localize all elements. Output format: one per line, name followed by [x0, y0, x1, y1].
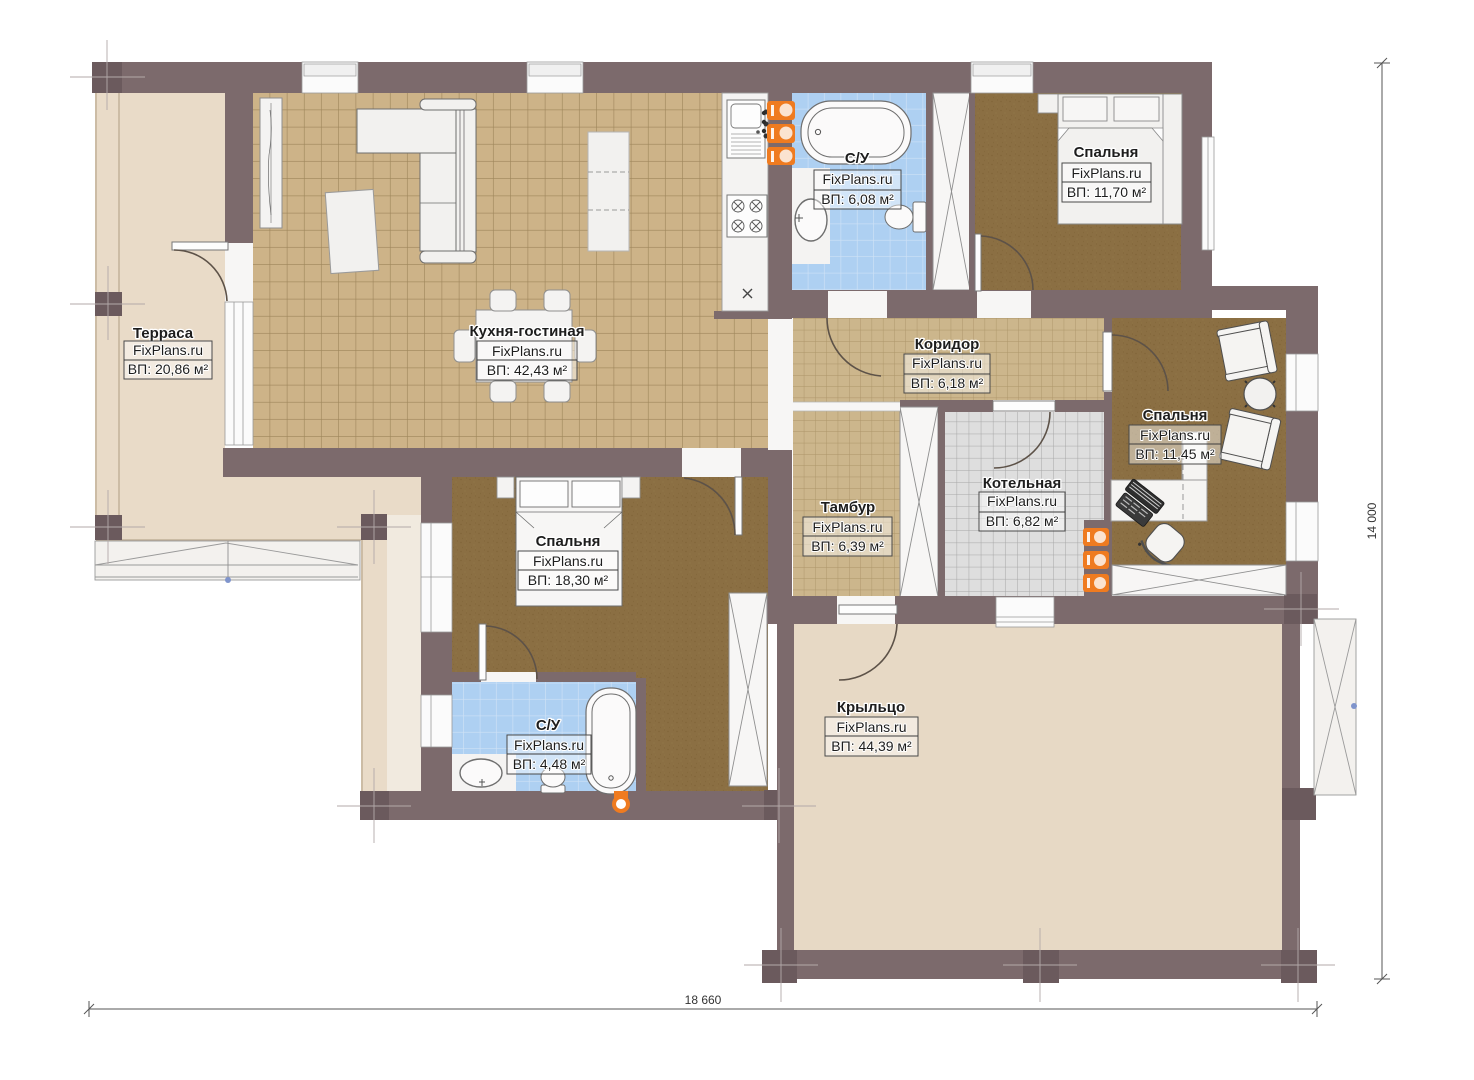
svg-text:Спальня: Спальня [536, 533, 601, 550]
svg-text:ВП: 4,48 м²: ВП: 4,48 м² [513, 756, 586, 772]
svg-text:ВП: 11,70 м²: ВП: 11,70 м² [1067, 184, 1147, 200]
svg-text:ВП: 11,45 м²: ВП: 11,45 м² [1135, 446, 1215, 462]
svg-text:FixPlans.ru: FixPlans.ru [836, 719, 906, 735]
svg-text:ВП: 18,30 м²: ВП: 18,30 м² [528, 572, 609, 588]
svg-text:ВП: 44,39 м²: ВП: 44,39 м² [831, 738, 912, 754]
svg-text:FixPlans.ru: FixPlans.ru [987, 493, 1057, 509]
svg-text:ВП: 42,43 м²: ВП: 42,43 м² [487, 362, 568, 378]
svg-text:С/У: С/У [536, 717, 561, 734]
svg-text:ВП: 6,18 м²: ВП: 6,18 м² [911, 375, 984, 391]
svg-text:FixPlans.ru: FixPlans.ru [133, 342, 203, 358]
svg-text:ВП: 6,39 м²: ВП: 6,39 м² [811, 538, 884, 554]
svg-text:ВП: 20,86 м²: ВП: 20,86 м² [128, 361, 209, 377]
svg-text:Коридор: Коридор [915, 336, 980, 353]
svg-text:Крыльцо: Крыльцо [837, 699, 905, 716]
svg-text:ВП: 6,08 м²: ВП: 6,08 м² [821, 191, 894, 207]
svg-text:FixPlans.ru: FixPlans.ru [514, 737, 584, 753]
svg-text:FixPlans.ru: FixPlans.ru [1071, 165, 1141, 181]
svg-text:Котельная: Котельная [983, 475, 1062, 492]
svg-text:FixPlans.ru: FixPlans.ru [492, 343, 562, 359]
svg-text:С/У: С/У [845, 150, 870, 167]
svg-text:FixPlans.ru: FixPlans.ru [822, 171, 892, 187]
svg-text:FixPlans.ru: FixPlans.ru [533, 553, 603, 569]
svg-text:Спальня: Спальня [1143, 407, 1208, 424]
svg-text:Кухня-гостиная: Кухня-гостиная [470, 323, 585, 340]
svg-text:Спальня: Спальня [1074, 144, 1139, 161]
svg-text:Тамбур: Тамбур [821, 499, 875, 516]
svg-text:FixPlans.ru: FixPlans.ru [1140, 427, 1210, 443]
svg-text:ВП: 6,82 м²: ВП: 6,82 м² [986, 513, 1059, 529]
svg-text:FixPlans.ru: FixPlans.ru [912, 355, 982, 371]
svg-text:Терраса: Терраса [133, 325, 194, 342]
svg-text:14 000: 14 000 [1365, 502, 1379, 539]
svg-text:FixPlans.ru: FixPlans.ru [812, 519, 882, 535]
svg-text:18 660: 18 660 [685, 993, 722, 1007]
